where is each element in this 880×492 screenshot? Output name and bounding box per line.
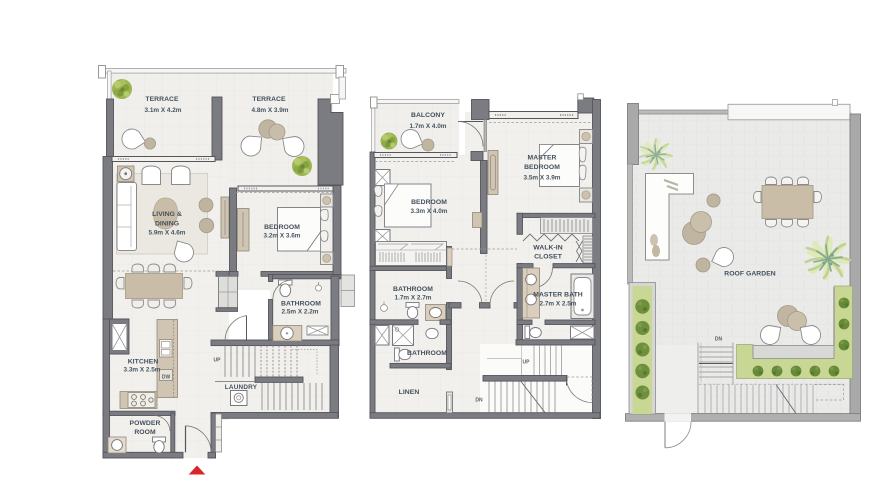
svg-text:BEDROOM: BEDROOM [264,224,300,231]
svg-text:3.5m X 3.9m: 3.5m X 3.9m [524,175,561,182]
svg-text:3.2m X 3.6m: 3.2m X 3.6m [264,233,301,240]
svg-text:DW: DW [162,374,171,380]
svg-text:LIVING &: LIVING & [152,211,182,218]
svg-text:DN: DN [715,337,723,343]
svg-text:BEDROOM: BEDROOM [524,164,560,171]
svg-text:UP: UP [523,359,531,365]
svg-text:5.9m X 4.6m: 5.9m X 4.6m [149,230,186,237]
svg-text:LINEN: LINEN [399,389,420,396]
svg-text:KITCHEN: KITCHEN [128,359,159,366]
svg-text:ROOF GARDEN: ROOF GARDEN [724,271,776,278]
svg-text:MASTER BATH: MASTER BATH [533,292,583,299]
svg-text:WALK-IN: WALK-IN [533,245,562,252]
svg-text:2.7m X 2.5m: 2.7m X 2.5m [540,300,577,307]
svg-text:3.3m X 2.5m: 3.3m X 2.5m [124,367,161,374]
svg-text:BALCONY: BALCONY [411,112,445,119]
svg-text:3.3m X 4.0m: 3.3m X 4.0m [411,208,448,215]
svg-text:CLOSET: CLOSET [534,254,563,261]
svg-text:2.5m X 2.2m: 2.5m X 2.2m [282,309,319,316]
svg-text:LAUNDRY: LAUNDRY [225,384,258,391]
svg-text:TERRACE: TERRACE [252,96,286,103]
svg-text:BATHROOM: BATHROOM [407,350,447,357]
svg-text:BATHROOM: BATHROOM [393,286,433,293]
svg-text:BEDROOM: BEDROOM [411,199,447,206]
svg-text:1.7m X 2.7m: 1.7m X 2.7m [395,295,432,302]
svg-text:POWDER: POWDER [130,420,161,427]
svg-text:DN: DN [475,397,483,403]
svg-text:DINING: DINING [155,221,179,228]
svg-text:ROOM: ROOM [134,429,156,436]
svg-text:BATHROOM: BATHROOM [281,301,321,308]
svg-text:MASTER: MASTER [528,155,557,162]
svg-text:4.8m X 3.9m: 4.8m X 3.9m [252,107,289,114]
svg-text:3.1m X 4.2m: 3.1m X 4.2m [145,107,182,114]
svg-text:1.7m X 4.0m: 1.7m X 4.0m [410,123,447,130]
svg-text:UP: UP [214,358,222,364]
svg-text:TERRACE: TERRACE [145,96,179,103]
